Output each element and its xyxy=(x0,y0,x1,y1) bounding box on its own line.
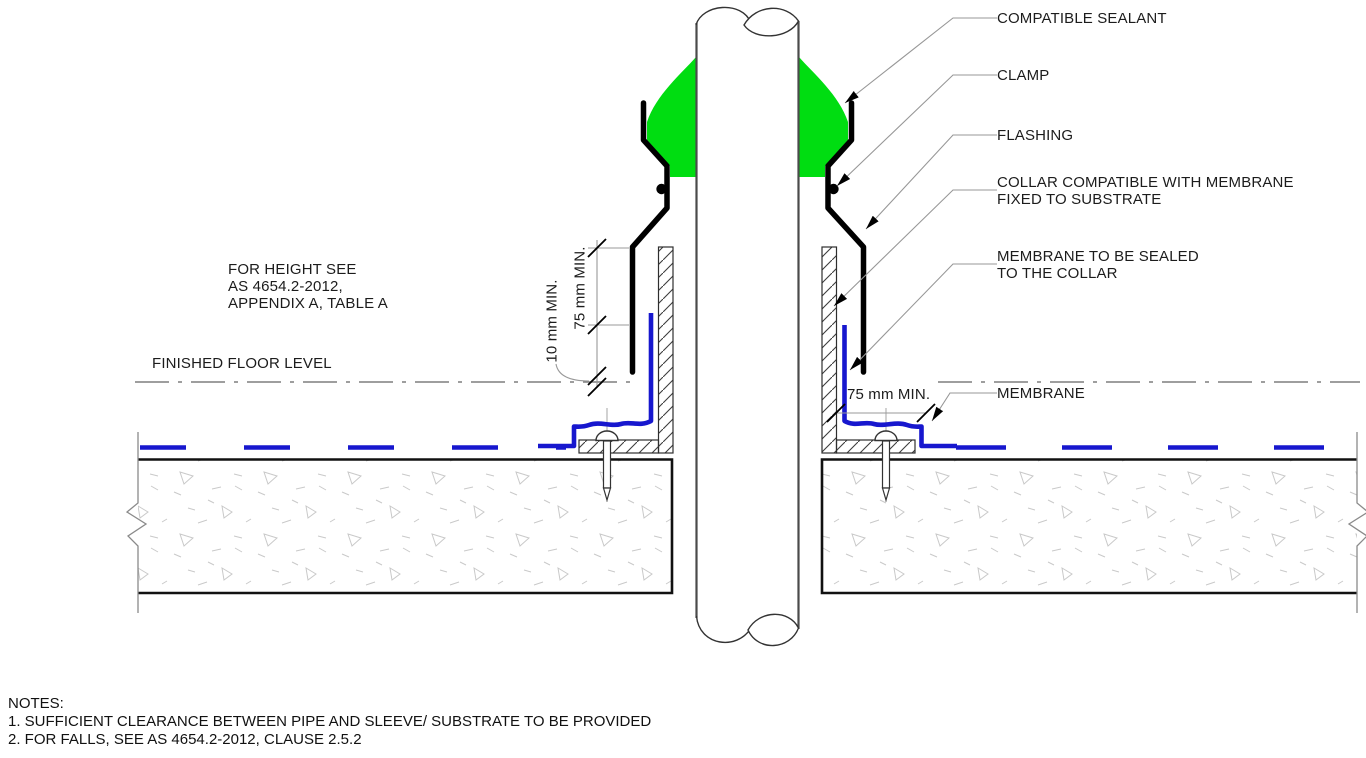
callout-membrane: MEMBRANE xyxy=(997,385,1085,402)
notes-block: NOTES: 1. SUFFICIENT CLEARANCE BETWEEN P… xyxy=(8,695,651,749)
callout-leaders xyxy=(834,18,997,421)
sealant-left xyxy=(647,57,696,177)
callout-collar: COLLAR COMPATIBLE WITH MEMBRANE FIXED TO… xyxy=(997,174,1294,208)
dim-75mm-left-label: 75 mm MIN. xyxy=(572,246,589,329)
callout-flashing: FLASHING xyxy=(997,127,1073,144)
dim-10mm-left-label: 10 mm MIN. xyxy=(544,279,561,362)
sealant-right xyxy=(799,57,848,177)
dim-75mm-right-label: 75 mm MIN. xyxy=(847,386,930,403)
leader-membrane xyxy=(932,393,997,421)
clamp-bolt-left xyxy=(656,184,666,194)
callout-membrane-sealed: MEMBRANE TO BE SEALED TO THE COLLAR xyxy=(997,248,1199,282)
finished-floor-level-label: FINISHED FLOOR LEVEL xyxy=(152,355,332,372)
height-reference-note: FOR HEIGHT SEE AS 4654.2-2012, APPENDIX … xyxy=(228,261,388,312)
notes-heading: NOTES: xyxy=(8,695,651,713)
dim-10mm-leader xyxy=(556,364,589,381)
leader-flashing xyxy=(866,135,997,229)
dimension-left xyxy=(556,239,629,396)
slab-left xyxy=(127,432,672,613)
note-item-2: 2. FOR FALLS, SEE AS 4654.2-2012, CLAUSE… xyxy=(8,731,651,749)
leader-collar xyxy=(834,190,997,306)
pipe xyxy=(696,7,799,645)
drawing-canvas xyxy=(0,0,1366,758)
leader-clamp xyxy=(837,75,997,186)
leader-compatible-sealant xyxy=(845,18,997,103)
callout-compatible-sealant: COMPATIBLE SEALANT xyxy=(997,10,1167,27)
callout-clamp: CLAMP xyxy=(997,67,1049,84)
note-item-1: 1. SUFFICIENT CLEARANCE BETWEEN PIPE AND… xyxy=(8,713,651,731)
leader-membrane-sealed xyxy=(850,264,997,370)
pipe-penetration-detail-drawing: COMPATIBLE SEALANT CLAMP FLASHING COLLAR… xyxy=(0,0,1366,758)
slab-right xyxy=(822,432,1366,613)
